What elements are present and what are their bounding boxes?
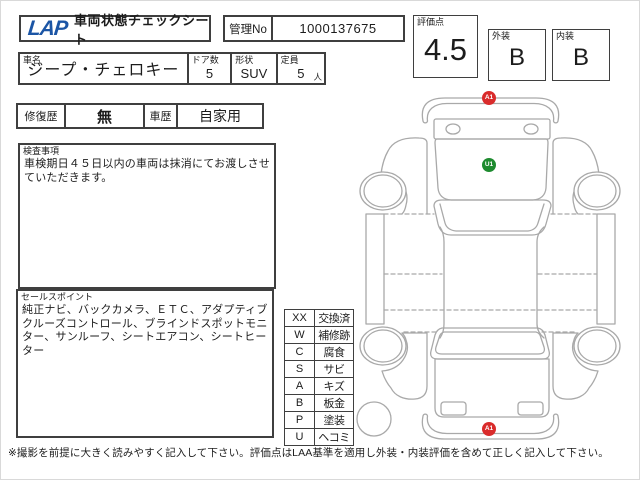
repair-history-label: 修復歴: [18, 105, 66, 127]
legend-label: 補修跡: [315, 327, 354, 344]
lap-logo: LAP: [27, 17, 69, 41]
damage-marker-rear: A1: [482, 422, 496, 436]
sheet-title: 車両状態チェックシート: [74, 10, 209, 48]
interior-score-label: 内装: [556, 31, 574, 41]
capacity-cell: 定員 5 人: [278, 54, 324, 83]
legend-code: U: [285, 429, 315, 446]
damage-marker-hood: U1: [482, 158, 496, 172]
interior-score-value: B: [553, 44, 609, 72]
car-damage-diagram: [356, 86, 640, 449]
headlight-right: [524, 124, 538, 134]
taillight-right: [518, 402, 543, 415]
legend-label: キズ: [315, 378, 354, 395]
legend-row: Uヘコミ: [285, 429, 354, 446]
rear-hatch: [435, 359, 549, 417]
legend-code: XX: [285, 310, 315, 327]
interior-score-box: 内装 B: [552, 29, 610, 81]
vehicle-name-cell: 車名 ジープ・チェロキー: [20, 54, 189, 83]
vehicle-info-box: 車名 ジープ・チェロキー ドア数 5 形状 SUV 定員 5 人: [18, 52, 326, 85]
capacity-label: 定員: [281, 55, 299, 65]
shape-cell: 形状 SUV: [232, 54, 277, 83]
sales-points-box: セールスポイント 純正ナビ、バックカメラ、ＥＴＣ、アダプティブクルーズコントロー…: [16, 289, 274, 438]
rear-wheel-right: [574, 327, 620, 365]
rear-wheel-left: [360, 327, 406, 365]
management-no-value: 1000137675: [273, 17, 403, 40]
legend-row: W補修跡: [285, 327, 354, 344]
damage-legend-table: XX交換済 W補修跡 C腐食 Sサビ Aキズ B板金 P塗装 Uヘコミ: [284, 309, 354, 446]
damage-marker-front: A1: [482, 91, 496, 105]
legend-code: P: [285, 412, 315, 429]
side-sill-right: [597, 214, 615, 324]
doors-value: 5: [189, 66, 230, 81]
legend-label: ヘコミ: [315, 429, 354, 446]
spare-tire: [357, 402, 391, 436]
legend-row: P塗装: [285, 412, 354, 429]
legend-row: XX交換済: [285, 310, 354, 327]
side-sill-left: [366, 214, 384, 324]
overall-score-value: 4.5: [414, 33, 477, 67]
shape-label: 形状: [235, 55, 253, 65]
legend-code: B: [285, 395, 315, 412]
legend-label: サビ: [315, 361, 354, 378]
sales-points-text: 純正ナビ、バックカメラ、ＥＴＣ、アダプティブクルーズコントロール、ブラインドスポ…: [22, 304, 269, 358]
roof-left-edge: [440, 227, 444, 338]
doors-label: ドア数: [192, 55, 219, 65]
rear-window-glass: [436, 332, 545, 354]
management-no-label: 管理No: [225, 17, 273, 40]
front-wheel-right: [574, 172, 620, 210]
vehicle-check-sheet: LAP 車両状態チェックシート 管理No 1000137675 評価点 4.5 …: [0, 0, 640, 480]
repair-history-value: 無: [66, 105, 145, 127]
inspection-text: 車検期日４５日以内の車両は抹消にてお渡しさせていただきます。: [24, 158, 271, 185]
management-no-box: 管理No 1000137675: [223, 15, 405, 42]
usage-history-value: 自家用: [178, 105, 262, 127]
legend-row: Aキズ: [285, 378, 354, 395]
history-box: 修復歴 無 車歴 自家用: [16, 103, 264, 129]
front-panel: [434, 119, 550, 139]
headlight-left: [446, 124, 460, 134]
legend-code: A: [285, 378, 315, 395]
exterior-score-box: 外装 B: [488, 29, 546, 81]
overall-score-label: 評価点: [417, 17, 444, 27]
vehicle-name-value: ジープ・チェロキー: [20, 56, 187, 80]
legend-code: S: [285, 361, 315, 378]
doors-cell: ドア数 5: [189, 54, 232, 83]
legend-code: C: [285, 344, 315, 361]
roof-right-edge: [537, 227, 544, 338]
windshield-glass: [440, 204, 544, 231]
legend-label: 塗装: [315, 412, 354, 429]
inspection-box: 検査事項 車検期日４５日以内の車両は抹消にてお渡しさせていただきます。: [18, 143, 276, 289]
usage-history-label: 車歴: [145, 105, 178, 127]
legend-label: 交換済: [315, 310, 354, 327]
legend-code: W: [285, 327, 315, 344]
title-box: LAP 車両状態チェックシート: [19, 15, 211, 42]
legend-row: Sサビ: [285, 361, 354, 378]
footer-note: ※撮影を前提に大きく読みやすく記入して下さい。評価点はLAA基準を適用し外装・内…: [8, 445, 638, 460]
legend-row: C腐食: [285, 344, 354, 361]
exterior-score-value: B: [489, 44, 545, 72]
sales-points-label: セールスポイント: [21, 292, 93, 302]
legend-label: 腐食: [315, 344, 354, 361]
taillight-left: [441, 402, 466, 415]
capacity-unit: 人: [313, 71, 322, 83]
shape-value: SUV: [232, 66, 275, 81]
front-wheel-left: [360, 172, 406, 210]
exterior-score-label: 外装: [492, 31, 510, 41]
overall-score-box: 評価点 4.5: [413, 15, 478, 78]
panel-dashed-lines: [384, 214, 596, 332]
legend-label: 板金: [315, 395, 354, 412]
inspection-label: 検査事項: [23, 146, 59, 156]
legend-row: B板金: [285, 395, 354, 412]
